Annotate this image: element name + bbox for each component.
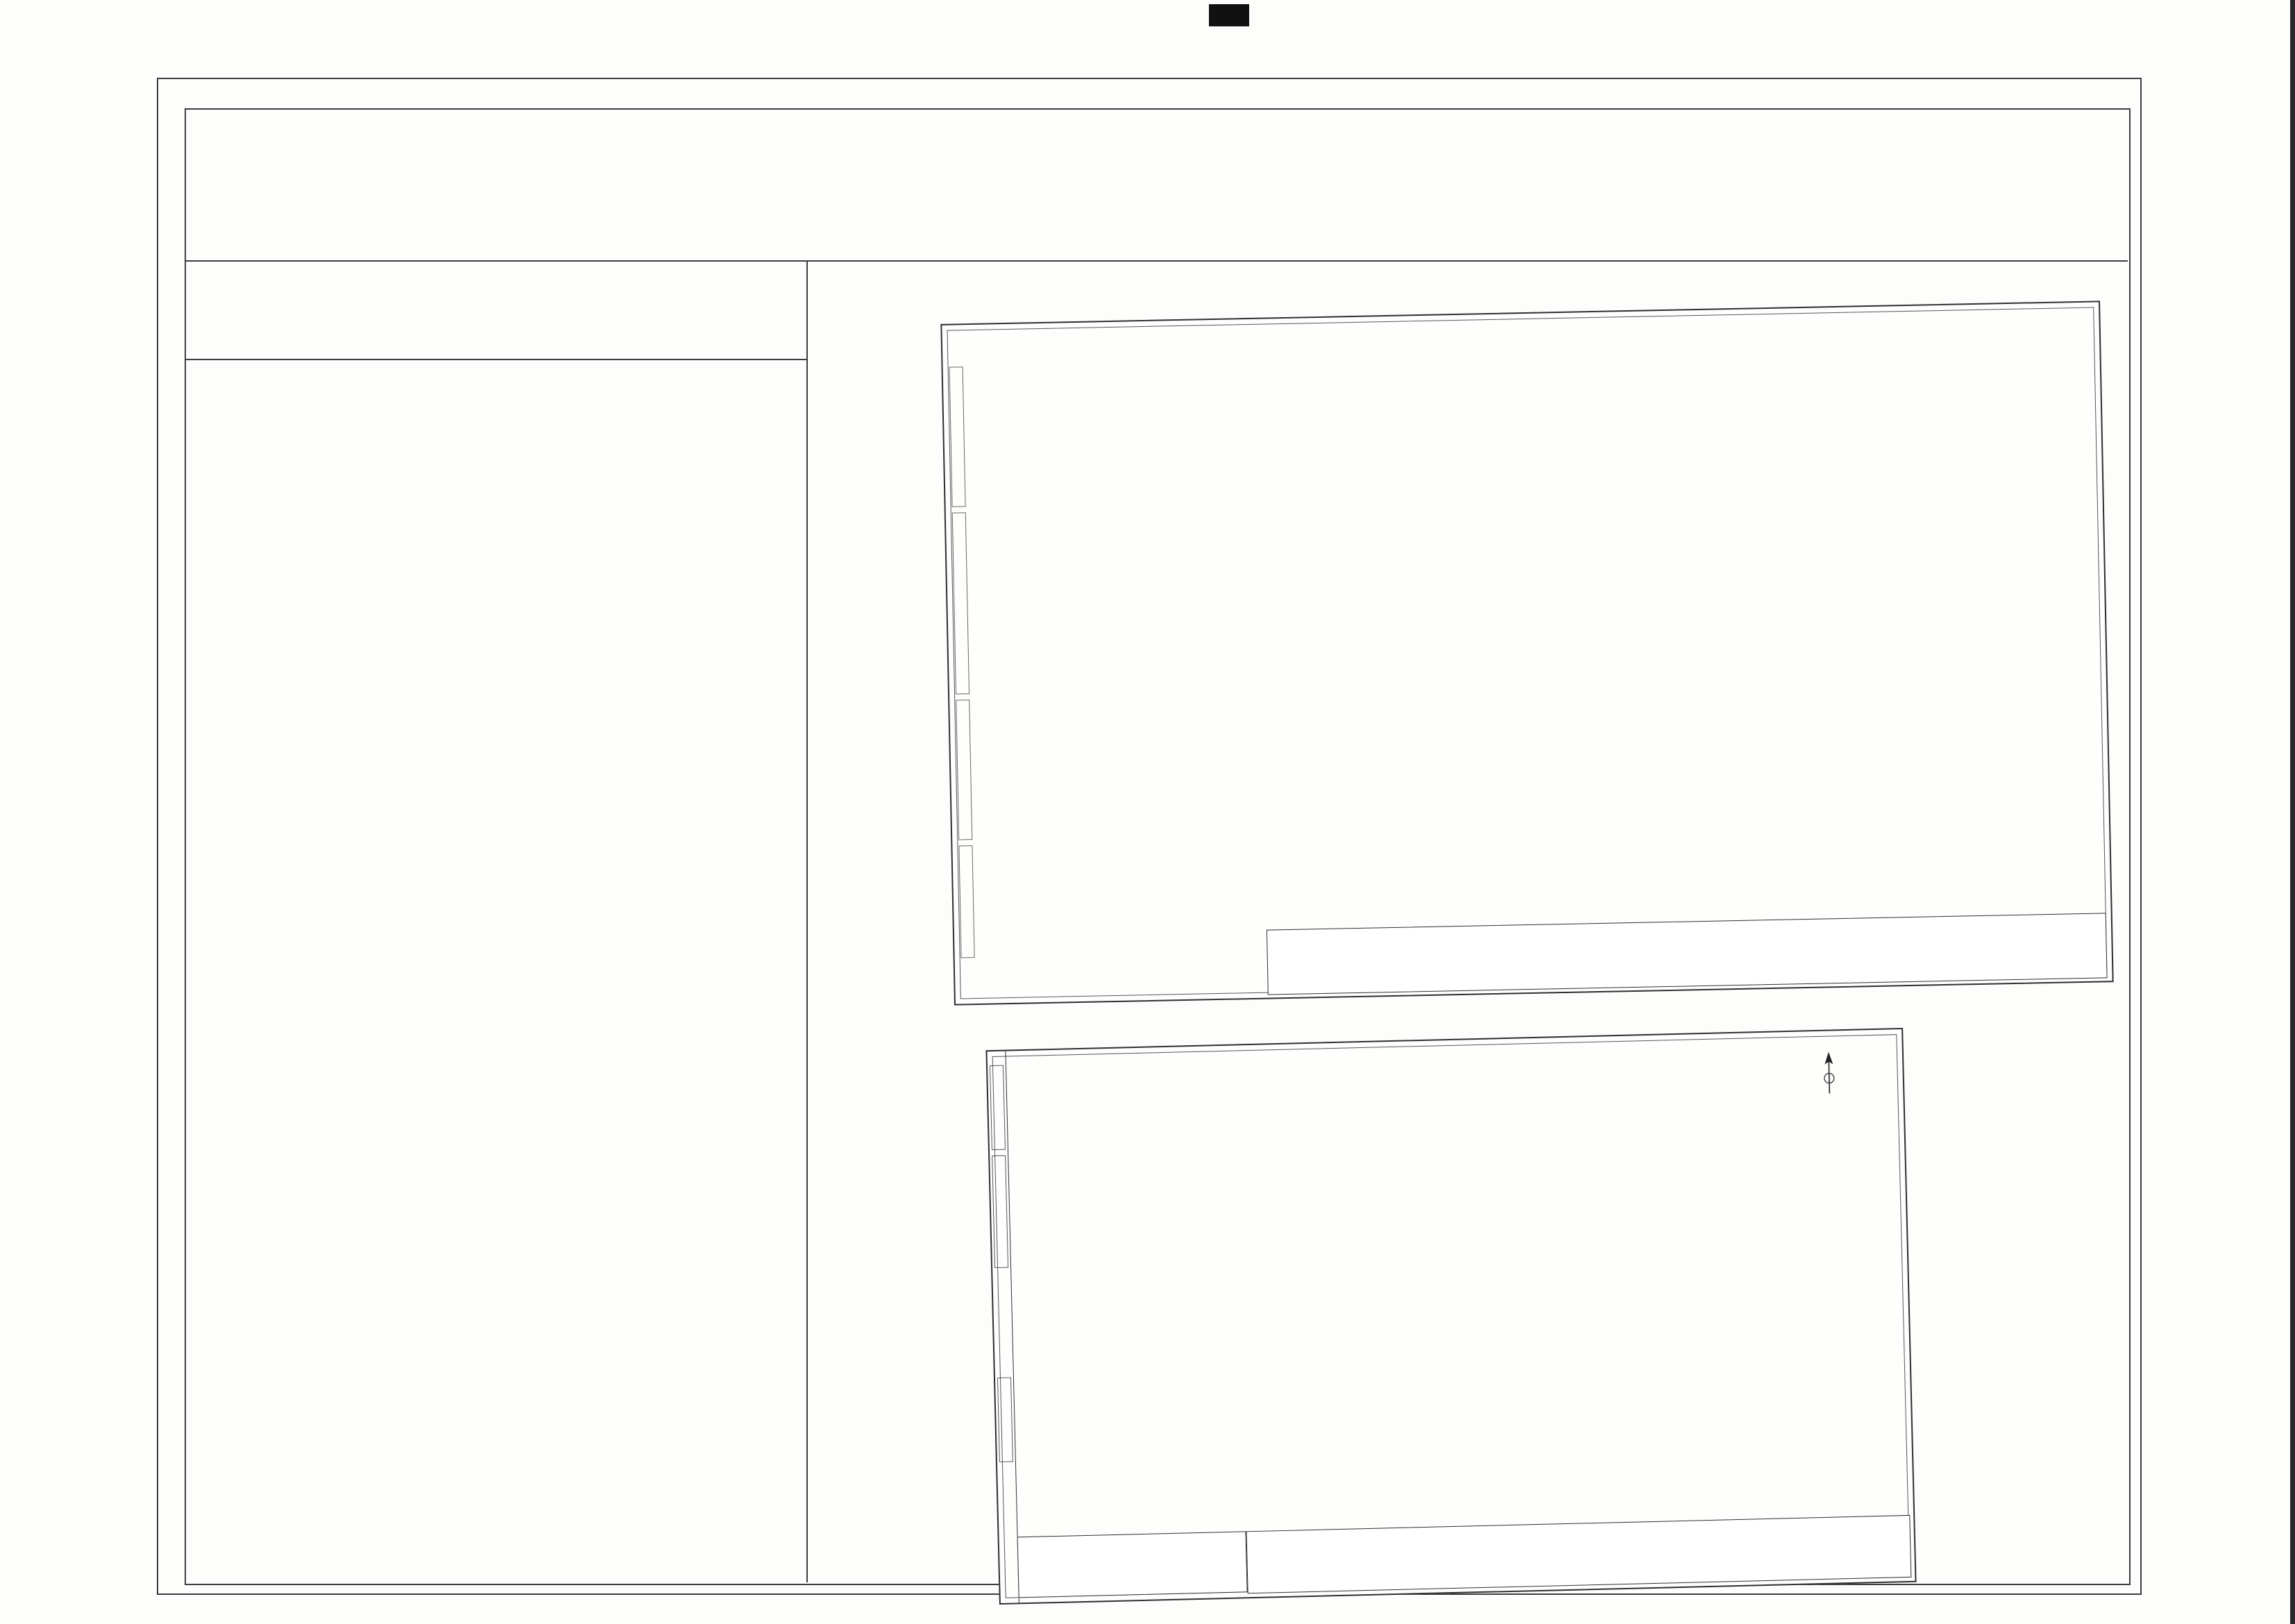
map-grid-tiles — [1006, 1033, 1909, 1532]
drawing2-titleblock — [1246, 1515, 1911, 1593]
drawing-pipeline-sheet — [985, 1028, 1916, 1605]
north-rose-icon — [1528, 416, 1642, 564]
siteplan-caption — [1112, 941, 1118, 956]
north-arrow-icon — [1815, 1050, 1844, 1099]
scanned-notice-page — [0, 0, 2295, 1624]
official-seal — [501, 1314, 718, 1546]
notice-header-box — [185, 260, 806, 360]
notice-header — [185, 260, 806, 271]
scan-artifact-top — [1209, 4, 1249, 26]
drawing2-legend-box — [1017, 1531, 1248, 1598]
seal-graphic — [501, 1314, 718, 1546]
pipeline-map — [1006, 1033, 1909, 1532]
title-band — [185, 108, 2128, 262]
siteplan-caption-text — [1112, 941, 1113, 959]
drawing-siteplan-sheet — [940, 301, 2113, 1005]
scan-artifact-right-edge — [2290, 0, 2295, 1624]
siteplan-graphic — [963, 335, 1544, 936]
